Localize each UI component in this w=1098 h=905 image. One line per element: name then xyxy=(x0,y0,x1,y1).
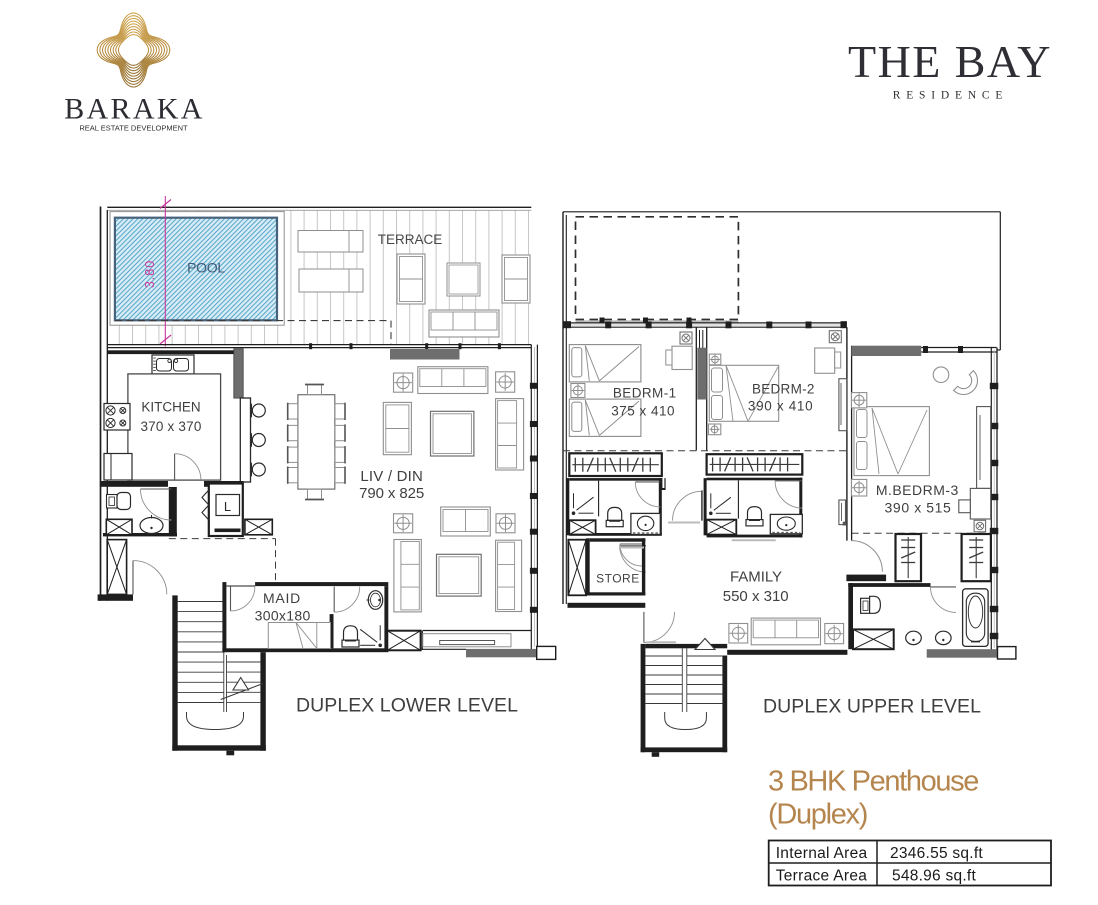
svg-text:390 x 515: 390 x 515 xyxy=(885,500,952,516)
svg-text:DUPLEX UPPER LEVEL: DUPLEX UPPER LEVEL xyxy=(763,696,981,718)
svg-text:M.BEDRM-3: M.BEDRM-3 xyxy=(876,482,959,498)
svg-text:MAID: MAID xyxy=(263,590,301,606)
svg-text:550 x 310: 550 x 310 xyxy=(723,588,789,605)
svg-text:REAL ESTATE DEVELOPMENT: REAL ESTATE DEVELOPMENT xyxy=(79,124,188,133)
svg-text:DUPLEX LOWER LEVEL: DUPLEX LOWER LEVEL xyxy=(296,695,518,717)
svg-text:300x180: 300x180 xyxy=(255,608,311,624)
svg-text:BEDRM-2: BEDRM-2 xyxy=(752,382,815,397)
svg-text:390 x 410: 390 x 410 xyxy=(748,399,813,414)
svg-text:FAMILY: FAMILY xyxy=(730,569,782,586)
svg-text:370 x 370: 370 x 370 xyxy=(140,419,201,434)
svg-text:3 BHK Penthouse: 3 BHK Penthouse xyxy=(768,766,978,798)
svg-text:KITCHEN: KITCHEN xyxy=(141,400,200,415)
svg-text:BEDRM-1: BEDRM-1 xyxy=(613,386,677,401)
svg-text:POOL: POOL xyxy=(187,260,225,276)
svg-text:L: L xyxy=(224,499,231,514)
svg-text:STORE: STORE xyxy=(596,572,640,586)
svg-text:LIV / DIN: LIV / DIN xyxy=(360,468,423,485)
svg-text:3.80: 3.80 xyxy=(143,260,157,288)
svg-text:(Duplex): (Duplex) xyxy=(768,799,867,831)
svg-text:BARAKA: BARAKA xyxy=(64,93,204,126)
svg-text:RESIDENCE: RESIDENCE xyxy=(893,90,1008,102)
svg-text:Internal Area: Internal Area xyxy=(776,845,868,862)
svg-text:375 x 410: 375 x 410 xyxy=(611,404,675,419)
svg-text:THE BAY: THE BAY xyxy=(848,36,1052,87)
svg-text:Terrace Area: Terrace Area xyxy=(776,868,868,885)
svg-text:TERRACE: TERRACE xyxy=(378,232,443,247)
svg-text:2346.55 sq.ft: 2346.55 sq.ft xyxy=(890,845,983,862)
svg-text:790 x 825: 790 x 825 xyxy=(359,485,424,502)
svg-text:548.96 sq.ft: 548.96 sq.ft xyxy=(892,868,977,885)
